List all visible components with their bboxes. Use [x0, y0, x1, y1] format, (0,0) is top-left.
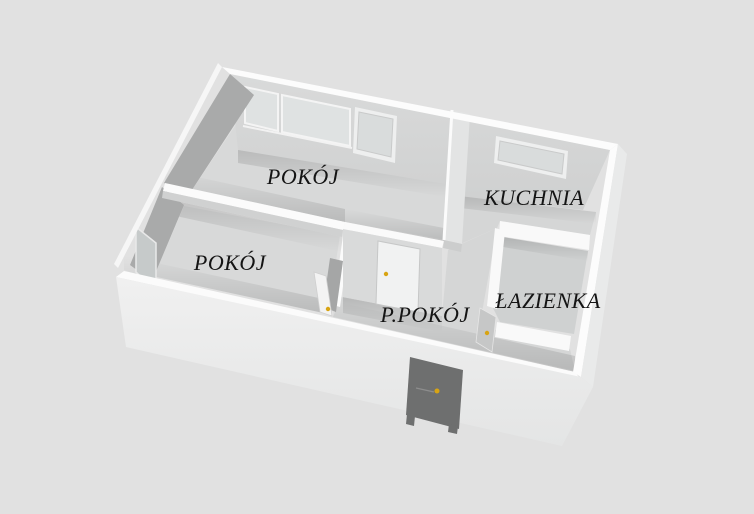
- label-kitchen: KUCHNIA: [483, 185, 584, 210]
- label-small-room: POKÓJ: [193, 250, 267, 275]
- label-hallway: P.POKÓJ: [379, 302, 470, 327]
- floor-plan-render: POKÓJ POKÓJ KUCHNIA P.POKÓJ ŁAZIENKA: [0, 0, 754, 514]
- label-bathroom: ŁAZIENKA: [494, 288, 601, 313]
- entrance-door-foot-left: [406, 414, 415, 426]
- large-room-window-right: [357, 112, 393, 157]
- bathroom-door-handle: [485, 331, 489, 335]
- entrance-door-handle: [435, 389, 440, 394]
- label-large-room: POKÓJ: [266, 164, 340, 189]
- floor-plan-stage: POKÓJ POKÓJ KUCHNIA P.POKÓJ ŁAZIENKA: [0, 0, 754, 514]
- small-room-door-handle: [326, 307, 330, 311]
- large-room-door-handle: [384, 272, 388, 276]
